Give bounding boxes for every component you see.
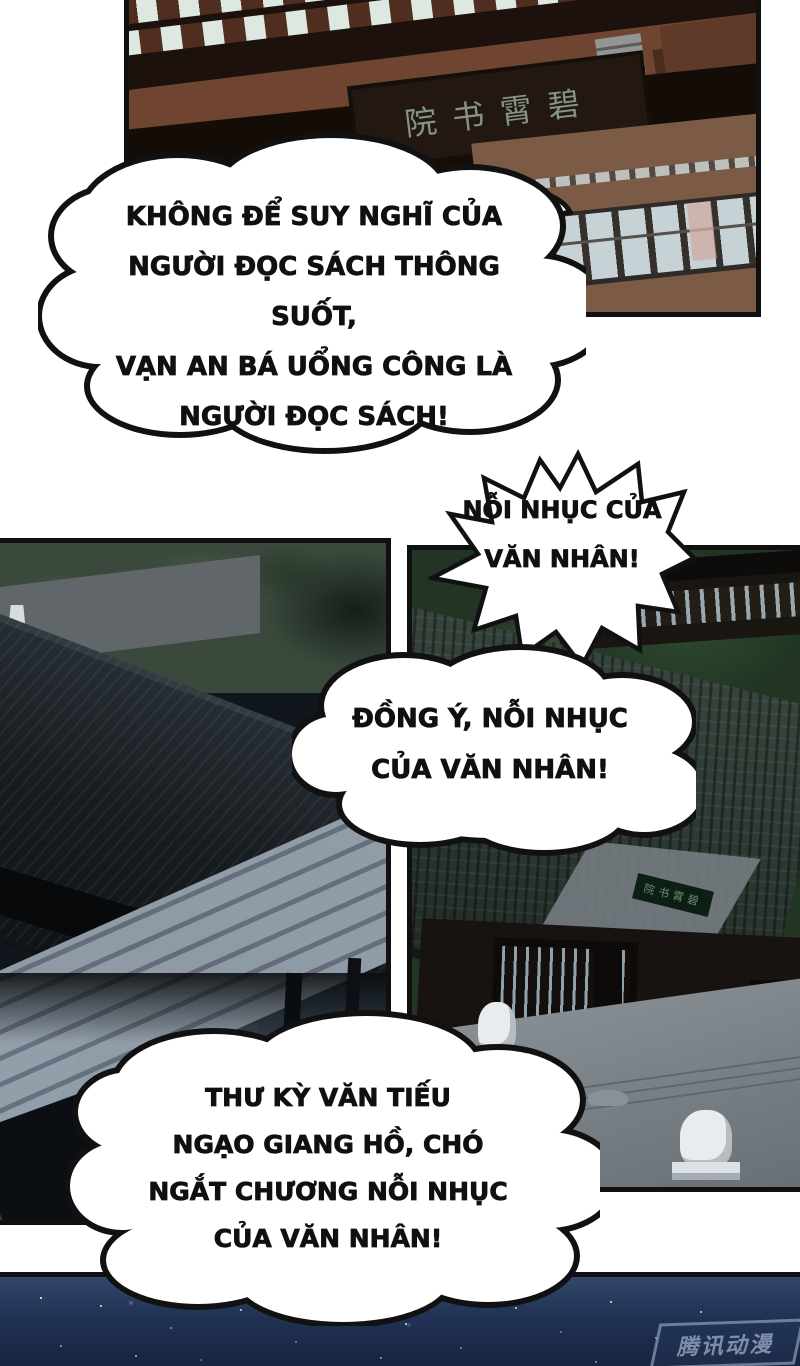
bubble-text-line: VẠN AN BÁ UỔNG CÔNG LÀ [100,342,528,392]
bubble-text-line: CỦA VĂN NHÂN! [318,745,662,796]
bubble-3-text: ĐỒNG Ý, NỖI NHỤC CỦA VĂN NHÂN! [318,694,662,796]
bubble-text-line: NGƯỜI ĐỌC SÁCH! [100,392,528,442]
watermark-text: 腾讯动漫 [675,1326,779,1361]
tencent-comics-watermark: 腾讯动漫 [649,1319,800,1366]
bubble-text-line: NỖI NHỤC CỦA [446,486,678,535]
bubble-text-line: VĂN NHÂN! [446,535,678,584]
stars [40,1297,42,1299]
lion-pedestal [672,1162,740,1180]
stone-lion-statue [680,1110,732,1168]
bubble-4-text: THƯ KỲ VĂN TIẾU NGẠO GIANG HỒ, CHÓ NGẮT … [106,1074,550,1262]
bubble-text-line: ĐỒNG Ý, NỖI NHỤC [318,694,662,745]
comic-page: 院书霄碧 [0,0,800,1366]
bubble-text-line: NGƯỜI ĐỌC SÁCH THÔNG SUỐT, [100,242,528,342]
bubble-1-text: KHÔNG ĐỂ SUY NGHĨ CỦA NGƯỜI ĐỌC SÁCH THÔ… [100,192,528,442]
bubble-text-line: CỦA VĂN NHÂN! [106,1215,550,1262]
bubble-text-line: NGẠO GIANG HỒ, CHÓ [106,1121,550,1168]
bubble-text-line: NGẮT CHƯƠNG NỖI NHỤC [106,1168,550,1215]
bubble-2-text: NỖI NHỤC CỦA VĂN NHÂN! [446,486,678,584]
bubble-text-line: THƯ KỲ VĂN TIẾU [106,1074,550,1121]
bubble-text-line: KHÔNG ĐỂ SUY NGHĨ CỦA [100,192,528,242]
